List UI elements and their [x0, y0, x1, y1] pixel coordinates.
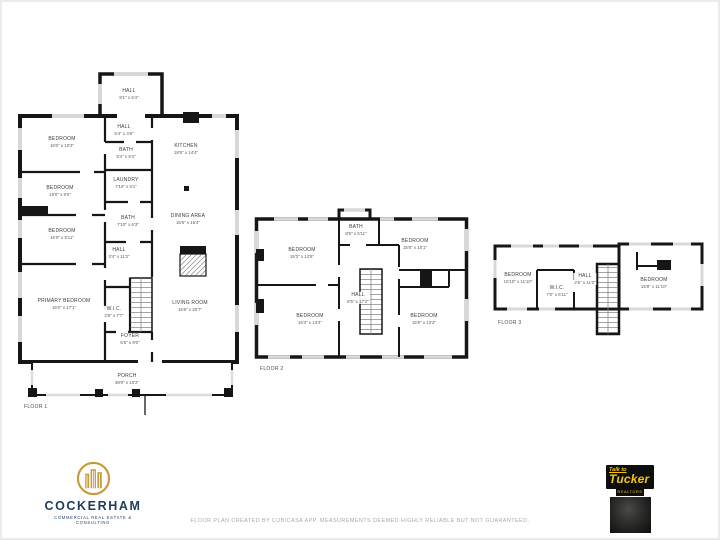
room-dims: 15'3" x 13'4": [296, 319, 323, 325]
room-dims: 18'6" x 14'4": [174, 149, 198, 155]
room-name: BEDROOM: [401, 238, 428, 245]
room-name: BEDROOM: [640, 277, 667, 284]
room-label-f2-bath: BATH8'5" x 5'11": [344, 224, 367, 236]
floor2-label: FLOOR 2: [260, 366, 284, 372]
tucker-photo: [610, 497, 651, 533]
room-label-f1-wic: W.I.C.3'8" x 7'7": [103, 306, 124, 318]
room-label-f3-wic: W.I.C.7'0" x 6'11": [545, 285, 568, 297]
room-label-f1-laundry: LAUNDRY7'10" x 6'1": [112, 177, 139, 189]
tucker-realtors: REALTORS: [616, 489, 644, 496]
wall-block: [256, 249, 264, 261]
room-name: LIVING ROOM: [172, 300, 208, 307]
room-dims: 8'5" x 17'2": [347, 298, 369, 304]
room-name: PRIMARY BEDROOM: [38, 298, 91, 305]
chimney-block: [183, 112, 199, 123]
room-dims: 5'4" x 5'4": [116, 153, 135, 159]
wall-block: [20, 206, 48, 216]
room-name: LAUNDRY: [113, 177, 138, 184]
room-name: BEDROOM: [48, 136, 75, 143]
tucker-box: Talk to Tucker: [606, 465, 654, 489]
room-label-f1-hall-3: HALL3'4" x 11'2": [107, 247, 130, 259]
room-name: BEDROOM: [288, 247, 315, 254]
room-dims: 15'6" x 20'7": [172, 306, 208, 312]
room-dims: 15'6" x 13'3": [410, 319, 437, 325]
cockerham-buildings-icon: [76, 461, 111, 496]
room-dims: 16'0" x 8'11": [48, 234, 75, 240]
room-label-f1-primary-bedroom: PRIMARY BEDROOM16'0" x 17'1": [37, 298, 92, 310]
room-label-f1-bath-2: BATH7'10" x 6'3": [116, 215, 140, 227]
room-label-f2-bedroom-br: BEDROOM15'6" x 13'3": [409, 313, 438, 325]
closet-block: [420, 270, 432, 287]
room-dims: 15'6" x 16'4": [171, 219, 205, 225]
tucker-name: Tucker: [609, 473, 651, 486]
room-name: BEDROOM: [46, 185, 73, 192]
room-name: BEDROOM: [296, 313, 323, 320]
room-name: BEDROOM: [48, 228, 75, 235]
room-name: DINING AREA: [171, 213, 205, 220]
room-dims: 6'5" x 9'0": [120, 339, 139, 345]
disclaimer-text: FLOOR PLAN CREATED BY CUBICASA APP. MEAS…: [2, 518, 718, 524]
kitchen-island: [184, 186, 189, 191]
room-name: KITCHEN: [174, 143, 198, 150]
room-label-f1-hall-upper: HALL8'1" x 5'4": [118, 88, 139, 100]
wall-block: [256, 299, 264, 313]
stairs-icon: [597, 264, 619, 334]
cockerham-name: COCKERHAM: [38, 499, 148, 513]
room-dims: 7'0" x 6'11": [546, 291, 567, 297]
room-label-f2-bedroom-tr: BEDROOM15'6" x 10'1": [400, 238, 429, 250]
room-name: BEDROOM: [504, 272, 533, 279]
room-dims: 15'10" x 11'10": [504, 278, 533, 284]
room-label-f1-dining-area: DINING AREA15'6" x 16'4": [170, 213, 206, 225]
room-label-f1-hall: HALL5'4" x 4'8": [113, 124, 134, 136]
room-label-f3-bedroom-r: BEDROOM15'8" x 11'10": [639, 277, 668, 289]
closet-block: [657, 260, 671, 270]
room-dims: 3'4" x 11'2": [108, 253, 129, 259]
room-dims: 16'0" x 10'3": [48, 142, 75, 148]
room-dims: 16'0" x 9'0": [46, 191, 73, 197]
room-name: BATH: [116, 147, 135, 154]
room-name: W.I.C.: [104, 306, 123, 313]
room-label-f1-porch: PORCH39'0" x 10'2": [114, 373, 140, 385]
room-name: PORCH: [115, 373, 139, 380]
room-label-f2-hall: HALL8'5" x 17'2": [346, 292, 370, 304]
room-dims: 15'8" x 11'10": [640, 283, 667, 289]
room-name: FOYER: [120, 333, 139, 340]
room-dims: 8'1" x 5'4": [119, 94, 138, 100]
floor3-label: FLOOR 3: [498, 320, 522, 326]
room-label-f1-kitchen: KITCHEN18'6" x 14'4": [173, 143, 199, 155]
room-label-f2-bedroom-bl: BEDROOM15'3" x 13'4": [295, 313, 324, 325]
room-label-f1-foyer: FOYER6'5" x 9'0": [119, 333, 140, 345]
fireplace-icon: [180, 246, 206, 276]
room-label-f1-bedroom-1: BEDROOM16'0" x 10'3": [47, 136, 76, 148]
room-dims: 15'3" x 12'8": [288, 253, 315, 259]
cockerham-logo: COCKERHAM COMMERCIAL REAL ESTATE & CONSU…: [38, 461, 148, 525]
room-label-f3-bedroom-l: BEDROOM15'10" x 11'10": [503, 272, 534, 284]
room-dims: 39'0" x 10'2": [115, 379, 139, 385]
floor1-label: FLOOR 1: [24, 404, 48, 410]
room-dims: 7'10" x 6'1": [113, 183, 138, 189]
room-label-f2-bedroom-tl: BEDROOM15'3" x 12'8": [287, 247, 316, 259]
floor1-drawing: [16, 70, 241, 420]
room-label-f3-hall: HALL2'6" x 11'0": [573, 273, 596, 285]
room-name: BEDROOM: [410, 313, 437, 320]
room-dims: 3'8" x 7'7": [104, 312, 123, 318]
room-dims: 8'5" x 5'11": [345, 230, 366, 236]
room-dims: 7'10" x 6'3": [117, 221, 139, 227]
room-label-f1-bath-1: BATH5'4" x 5'4": [115, 147, 136, 159]
room-dims: 15'6" x 10'1": [401, 244, 428, 250]
room-label-f1-bedroom-2: BEDROOM16'0" x 9'0": [45, 185, 74, 197]
room-label-f1-living-room: LIVING ROOM15'6" x 20'7": [171, 300, 209, 312]
room-dims: 16'0" x 17'1": [38, 304, 91, 310]
floor-plan-page: HALL8'1" x 5'4" HALL5'4" x 4'8" BEDROOM1…: [0, 0, 720, 540]
room-dims: 2'6" x 11'0": [574, 279, 595, 285]
room-label-f1-bedroom-3: BEDROOM16'0" x 8'11": [47, 228, 76, 240]
room-dims: 5'4" x 4'8": [114, 130, 133, 136]
stairs-icon: [130, 278, 152, 332]
